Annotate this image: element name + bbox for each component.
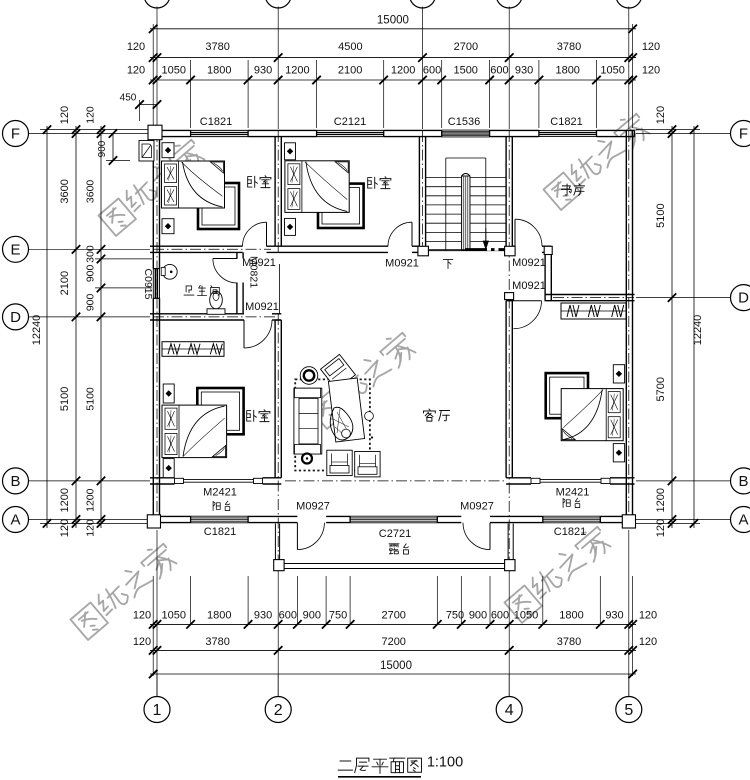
svg-text:120: 120 [127,65,145,77]
svg-text:3780: 3780 [205,41,229,53]
svg-text:1800: 1800 [207,610,231,622]
svg-text:B: B [738,473,748,490]
svg-text:12240: 12240 [31,315,43,346]
svg-text:120: 120 [59,106,71,124]
svg-text:M0821: M0821 [248,256,260,288]
svg-text:7200: 7200 [381,636,405,648]
svg-text:1200: 1200 [285,65,309,77]
svg-text:12240: 12240 [692,315,704,346]
svg-text:1: 1 [153,702,162,719]
svg-text:2: 2 [274,702,283,719]
svg-text:M0927: M0927 [296,501,330,513]
svg-text:3780: 3780 [557,41,581,53]
svg-text:120: 120 [127,41,145,53]
svg-text:120: 120 [59,519,71,537]
svg-text:C1821: C1821 [204,526,236,538]
svg-text:120: 120 [639,610,657,622]
svg-text:15000: 15000 [377,15,409,27]
svg-text:15000: 15000 [380,660,412,672]
svg-text:F: F [739,126,748,143]
svg-text:900: 900 [303,610,321,622]
svg-text:1050: 1050 [514,610,538,622]
svg-text:5: 5 [624,702,633,719]
svg-text:120: 120 [642,41,660,53]
svg-text:M0921: M0921 [512,280,546,292]
svg-text:E: E [10,241,20,258]
svg-text:1800: 1800 [559,610,583,622]
svg-text:C1821: C1821 [200,116,232,128]
svg-text:F: F [11,126,20,143]
svg-text:1200: 1200 [85,488,97,512]
svg-text:2700: 2700 [381,610,405,622]
svg-text:930: 930 [515,65,533,77]
svg-text:M0921: M0921 [385,258,419,270]
svg-text:120: 120 [639,636,657,648]
svg-text:120: 120 [655,519,667,537]
svg-text:1050: 1050 [162,65,186,77]
svg-text:120: 120 [642,65,660,77]
svg-text:1050: 1050 [600,65,624,77]
svg-text:300: 300 [85,245,97,263]
svg-text:1200: 1200 [391,65,415,77]
svg-text:A: A [738,512,748,529]
svg-text:5100: 5100 [85,387,97,411]
svg-text:120: 120 [133,636,151,648]
svg-text:M0921: M0921 [512,257,546,269]
svg-text:1050: 1050 [162,610,186,622]
svg-text:600: 600 [490,65,508,77]
svg-text:900: 900 [97,140,108,157]
svg-text:4: 4 [505,702,514,719]
svg-text:3600: 3600 [85,180,97,204]
svg-text:3780: 3780 [205,636,229,648]
svg-text:5700: 5700 [655,377,667,401]
svg-text:M2421: M2421 [556,487,590,499]
svg-text:1500: 1500 [453,65,477,77]
svg-text:C1536: C1536 [448,116,480,128]
svg-text:2100: 2100 [338,65,362,77]
svg-text:M0927: M0927 [460,501,494,513]
svg-text:C1821: C1821 [554,526,586,538]
svg-text:930: 930 [254,610,272,622]
svg-text:M0921: M0921 [245,301,279,313]
svg-text:A: A [10,512,20,529]
svg-text:B: B [10,473,20,490]
svg-text:2700: 2700 [454,41,478,53]
svg-text:1200: 1200 [655,488,667,512]
svg-text:M2421: M2421 [203,487,237,499]
svg-text:C2721: C2721 [379,528,411,540]
svg-text:900: 900 [85,264,97,282]
svg-text:900: 900 [85,293,97,311]
svg-text:600: 600 [423,65,441,77]
svg-text:120: 120 [133,610,151,622]
svg-text:900: 900 [469,610,487,622]
svg-text:D: D [10,309,21,326]
svg-text:C1821: C1821 [550,116,582,128]
svg-text:600: 600 [491,610,509,622]
svg-text:3600: 3600 [59,179,71,203]
svg-text:600: 600 [279,610,297,622]
svg-text:2100: 2100 [59,271,71,295]
svg-text:120: 120 [85,106,97,124]
svg-text:5100: 5100 [655,203,667,227]
svg-text:930: 930 [605,610,623,622]
svg-text:120: 120 [85,519,97,537]
svg-text:C2121: C2121 [334,116,366,128]
svg-text:3780: 3780 [557,636,581,648]
svg-text:1:100: 1:100 [427,755,463,771]
svg-text:930: 930 [254,65,272,77]
svg-text:1200: 1200 [59,488,71,512]
svg-text:4500: 4500 [338,41,362,53]
svg-text:5100: 5100 [59,387,71,411]
svg-text:C0915: C0915 [142,269,154,300]
svg-text:1800: 1800 [555,65,579,77]
svg-text:D: D [738,290,749,307]
svg-text:450: 450 [120,93,137,104]
svg-text:1800: 1800 [207,65,231,77]
svg-text:750: 750 [329,610,347,622]
svg-text:120: 120 [655,106,667,124]
